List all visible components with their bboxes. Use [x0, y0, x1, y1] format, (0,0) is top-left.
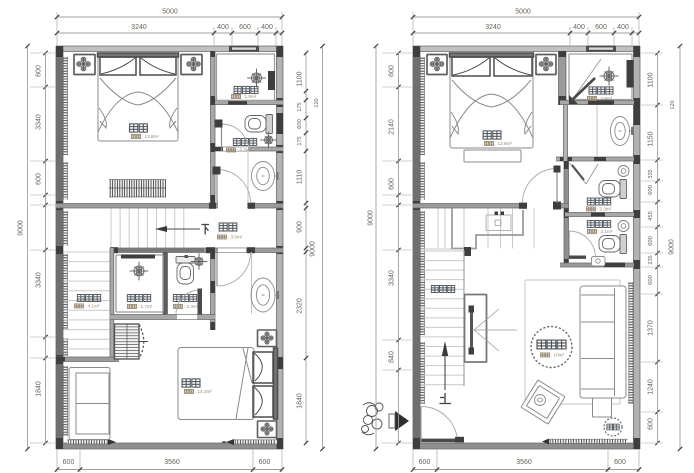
svg-text:: 2.6m²: : 2.6m² — [598, 96, 613, 101]
svg-text:600: 600 — [389, 65, 396, 77]
svg-text:: 13.8m²: : 13.8m² — [142, 134, 159, 139]
svg-text:3240: 3240 — [131, 24, 147, 31]
svg-text:: 12.8m²: : 12.8m² — [495, 141, 512, 146]
svg-text:600: 600 — [259, 459, 271, 466]
svg-text:600: 600 — [648, 236, 654, 246]
svg-text:1240: 1240 — [648, 379, 655, 395]
svg-text:335: 335 — [648, 169, 654, 178]
svg-text:9000: 9000 — [310, 241, 317, 257]
svg-text:400: 400 — [573, 24, 585, 31]
svg-text:400: 400 — [617, 24, 629, 31]
svg-text:1840: 1840 — [36, 381, 43, 397]
svg-text:: 2.7m²: : 2.7m² — [138, 304, 153, 309]
svg-text:175: 175 — [297, 102, 303, 111]
svg-text:9000: 9000 — [18, 220, 25, 236]
svg-text:5000: 5000 — [515, 9, 531, 16]
svg-text:3340: 3340 — [36, 272, 43, 288]
svg-text:1840: 1840 — [297, 393, 304, 409]
svg-text:175: 175 — [297, 136, 303, 145]
svg-text:600: 600 — [389, 178, 396, 190]
svg-text:3560: 3560 — [164, 459, 180, 466]
svg-text:1150: 1150 — [648, 131, 655, 146]
svg-text:400: 400 — [261, 24, 273, 31]
svg-text:455: 455 — [648, 211, 654, 221]
svg-text:5000: 5000 — [162, 9, 178, 16]
svg-text:600: 600 — [614, 459, 626, 466]
svg-text:1100: 1100 — [648, 72, 655, 87]
svg-text:235: 235 — [648, 255, 654, 264]
svg-text:600: 600 — [419, 459, 431, 466]
svg-text:: 4.1m²: : 4.1m² — [85, 304, 100, 309]
svg-text:3340: 3340 — [389, 270, 396, 286]
svg-text:: 2.4m²: : 2.4m² — [184, 304, 199, 309]
svg-text:840: 840 — [389, 351, 396, 363]
svg-text:600: 600 — [648, 275, 654, 285]
svg-text:2320: 2320 — [297, 298, 304, 314]
svg-text:: 2.2m²: : 2.2m² — [237, 148, 252, 153]
svg-text:: 1.8m²: : 1.8m² — [242, 94, 257, 99]
svg-text:1110: 1110 — [297, 170, 304, 185]
svg-text:600: 600 — [297, 119, 303, 129]
svg-text:9000: 9000 — [368, 210, 375, 226]
svg-text:: 14.3m²: : 14.3m² — [195, 389, 212, 394]
svg-text:600: 600 — [648, 418, 655, 430]
svg-text:3340: 3340 — [36, 114, 43, 130]
svg-text:1370: 1370 — [648, 320, 655, 336]
svg-text:600: 600 — [36, 65, 43, 77]
svg-text:: 3.5m²: : 3.5m² — [228, 235, 243, 240]
svg-text:600: 600 — [595, 24, 607, 31]
svg-text:9000: 9000 — [669, 239, 676, 255]
svg-text:3240: 3240 — [485, 24, 501, 31]
svg-text:120: 120 — [314, 98, 320, 107]
svg-text:1100: 1100 — [297, 71, 304, 86]
svg-text:600: 600 — [63, 459, 75, 466]
svg-text:: 10m²: : 10m² — [551, 353, 564, 358]
svg-text:: 3.1m²: : 3.1m² — [598, 229, 613, 234]
svg-text:120: 120 — [670, 100, 676, 109]
svg-text:: 2.3m²: : 2.3m² — [597, 207, 612, 212]
svg-text:2140: 2140 — [389, 119, 396, 135]
svg-text:600: 600 — [36, 173, 43, 185]
svg-text:600: 600 — [648, 185, 654, 195]
svg-text:3560: 3560 — [516, 459, 532, 466]
svg-text:400: 400 — [217, 24, 229, 31]
svg-text:900: 900 — [297, 221, 304, 233]
svg-text:600: 600 — [239, 24, 251, 31]
